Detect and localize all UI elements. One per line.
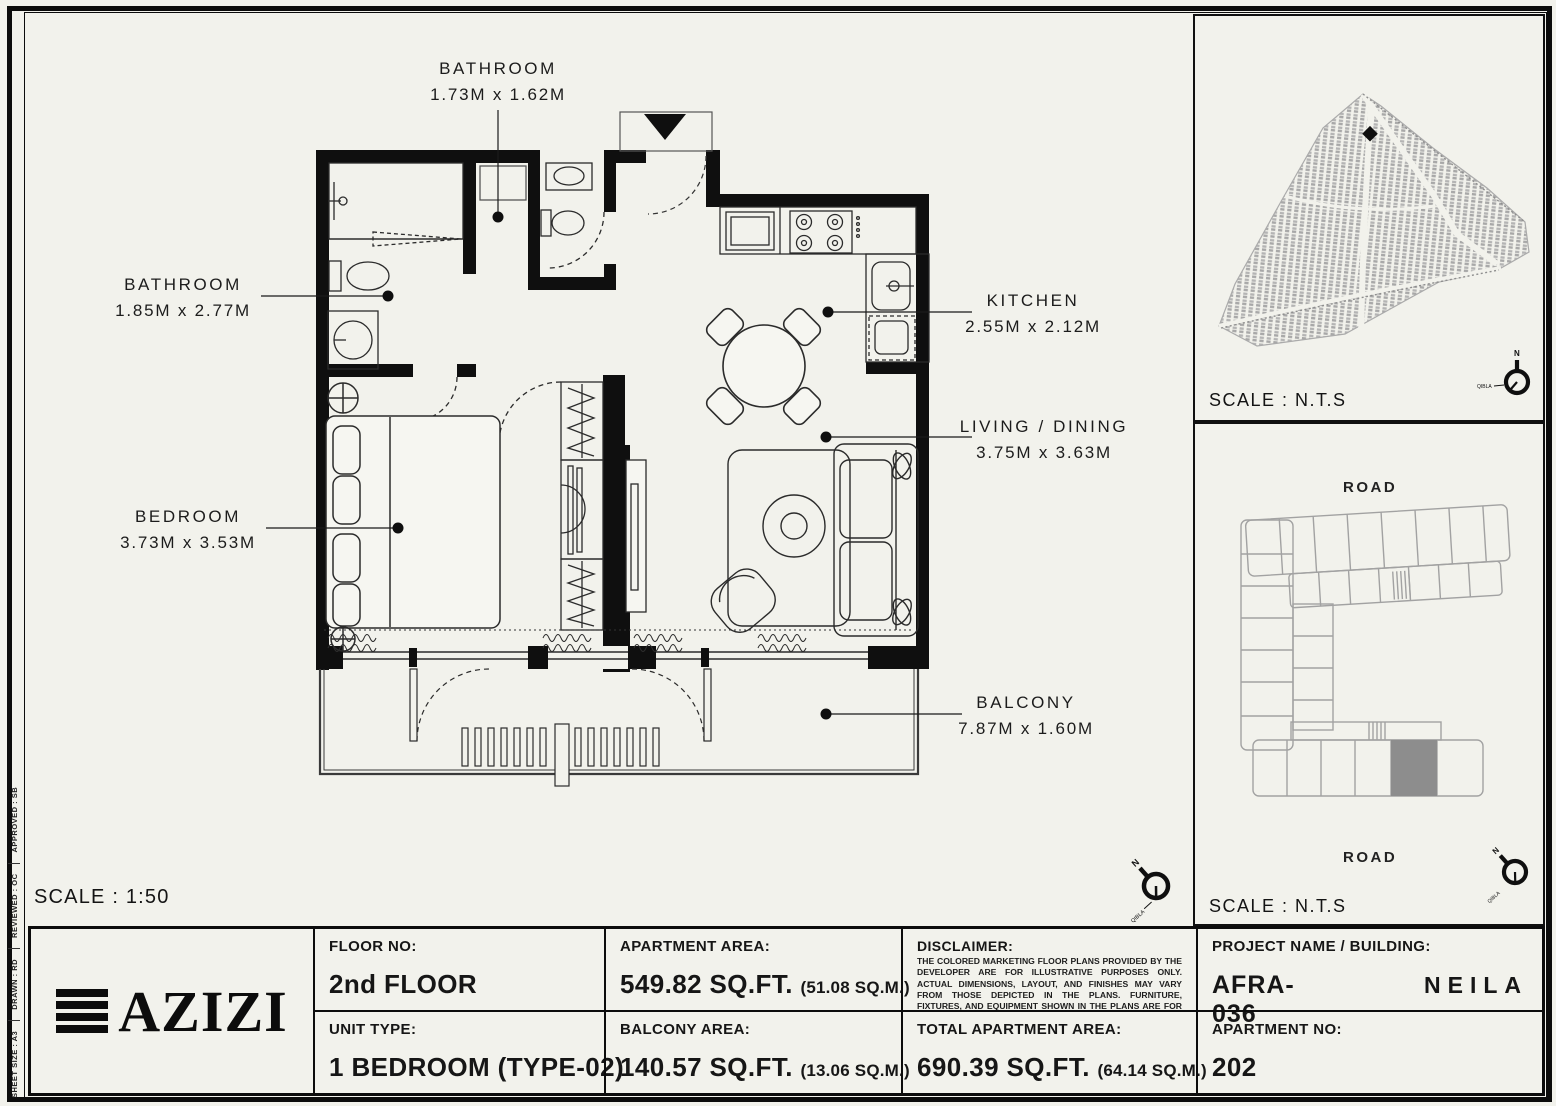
hall-door-swing (499, 382, 561, 444)
floorplan-drawing: N QIBLA (28, 14, 1193, 926)
accent-chair (704, 562, 782, 639)
entrance-arrow-icon (644, 114, 686, 140)
site-map-drawing: SCALE : N.T.S N QIBLA (1195, 16, 1543, 420)
road-label-top: ROAD (1343, 479, 1397, 496)
toilet-bowl (552, 211, 584, 235)
room-label-balcony: BALCONY 7.87M x 1.60M (958, 690, 1094, 741)
toilet-tank (541, 210, 551, 236)
site-map-panel: SCALE : N.T.S N QIBLA (1193, 14, 1545, 422)
basin (554, 167, 584, 185)
svg-text:N: N (1514, 349, 1520, 358)
washer-drum (875, 321, 908, 354)
apartment-area-cell: APARTMENT AREA: 549.82 SQ.FT. (51.08 SQ.… (604, 929, 901, 1010)
room-label-bedroom: BEDROOM 3.73M x 3.53M (120, 504, 256, 555)
stairs (1393, 571, 1411, 600)
svg-text:N: N (1130, 857, 1142, 869)
dining-set (704, 306, 823, 427)
apartment-no-cell: APARTMENT NO: 202 (1196, 1010, 1542, 1093)
unit-type-cell: UNIT TYPE: 1 BEDROOM (TYPE-02) (313, 1010, 604, 1093)
masterplan-map (1219, 94, 1529, 346)
building-name: NEILA (1424, 972, 1528, 999)
svg-text:N: N (1491, 845, 1501, 856)
stove-burners (797, 215, 860, 251)
dining-table (723, 325, 805, 407)
brand-logo: AZIZI (31, 929, 313, 1093)
compass-icon: N QIBLA (1463, 840, 1530, 907)
building-outline (1241, 504, 1512, 796)
floor-no-cell: FLOOR NO: 2nd FLOOR (313, 929, 604, 1010)
highlighted-unit (1391, 740, 1437, 796)
plant (889, 450, 915, 481)
svg-text:QIBLA: QIBLA (1487, 890, 1502, 905)
disclaimer-cell: DISCLAIMER: THE COLORED MARKETING FLOOR … (901, 929, 1196, 1010)
floor-plan-sheet: N QIBLA BATHROOM 1.73M x 1.62M BATHROOM … (0, 0, 1556, 1106)
toilet-tank (329, 261, 341, 291)
living-room (704, 444, 918, 639)
stairs (1369, 722, 1385, 740)
sitemap-scale-label: SCALE : N.T.S (1209, 390, 1347, 410)
counter-top (720, 207, 916, 254)
plant (889, 596, 915, 627)
stove (790, 211, 852, 253)
keyplan-scale-label: SCALE : N.T.S (1209, 896, 1347, 916)
balcony-post (555, 724, 569, 786)
room-label-living-dining: LIVING / DINING 3.75M x 3.63M (960, 414, 1128, 465)
project-name-cell: PROJECT NAME / BUILDING: AFRA-036 NEILA (1196, 929, 1542, 1010)
balcony (320, 669, 918, 786)
coffee-table (763, 495, 825, 557)
room-label-bathroom-small: BATHROOM 1.73M x 1.62M (430, 56, 566, 107)
toilet-bowl (347, 262, 389, 290)
main-scale-label: SCALE : 1:50 (34, 886, 170, 909)
bathroom-large (328, 163, 463, 421)
sheet-margin-notes: SHEET SIZE : A3 DRAWN : RD REVIEWED : OC… (6, 768, 22, 1098)
svg-text:QIBLA: QIBLA (1130, 909, 1146, 925)
compass-icon: N QIBLA (1477, 349, 1528, 393)
main-floorplan-panel: N QIBLA BATHROOM 1.73M x 1.62M BATHROOM … (28, 14, 1193, 926)
door-swing (548, 212, 604, 268)
table-lamp (328, 383, 358, 413)
balcony-louvers (462, 724, 659, 786)
azizi-bars-icon (56, 985, 108, 1037)
title-block: AZIZI FLOOR NO: 2nd FLOOR UNIT TYPE: 1 B… (28, 926, 1545, 1096)
total-area-cell: TOTAL APARTMENT AREA: 690.39 SQ.FT. (64.… (901, 1010, 1196, 1093)
key-plan-panel: ROAD (1193, 422, 1545, 926)
brand-name: AZIZI (118, 978, 287, 1045)
bed (326, 416, 500, 628)
shower-area (329, 163, 463, 239)
entry-niche (480, 166, 526, 200)
bathroom-door-swing (413, 377, 457, 421)
balcony-area-cell: BALCONY AREA: 140.57 SQ.FT. (13.06 SQ.M.… (604, 1010, 901, 1093)
compass-icon: N QIBLA (1101, 851, 1175, 924)
sofa-cushion (840, 542, 892, 620)
tv-unit (626, 460, 646, 612)
room-label-kitchen: KITCHEN 2.55M x 2.12M (965, 288, 1101, 339)
road-label-bottom: ROAD (1343, 849, 1397, 866)
bedroom (326, 383, 500, 651)
room-label-bathroom-large: BATHROOM 1.85M x 2.77M (115, 272, 251, 323)
fridge (726, 212, 774, 250)
key-plan-drawing: ROAD (1195, 424, 1543, 924)
svg-text:QIBLA: QIBLA (1477, 384, 1492, 390)
sofa-cushion (840, 460, 892, 538)
